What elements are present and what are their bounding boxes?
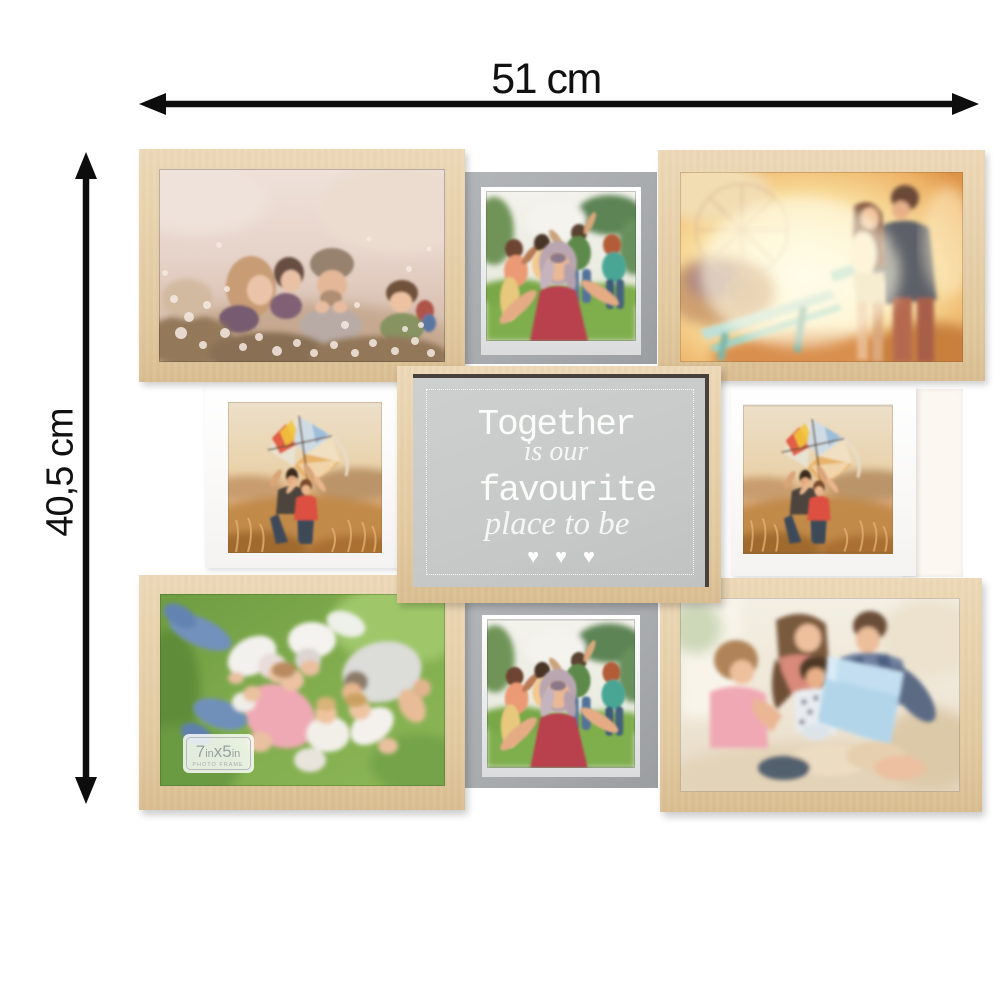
svg-text:PHOTO FRAME: PHOTO FRAME (192, 762, 243, 768)
